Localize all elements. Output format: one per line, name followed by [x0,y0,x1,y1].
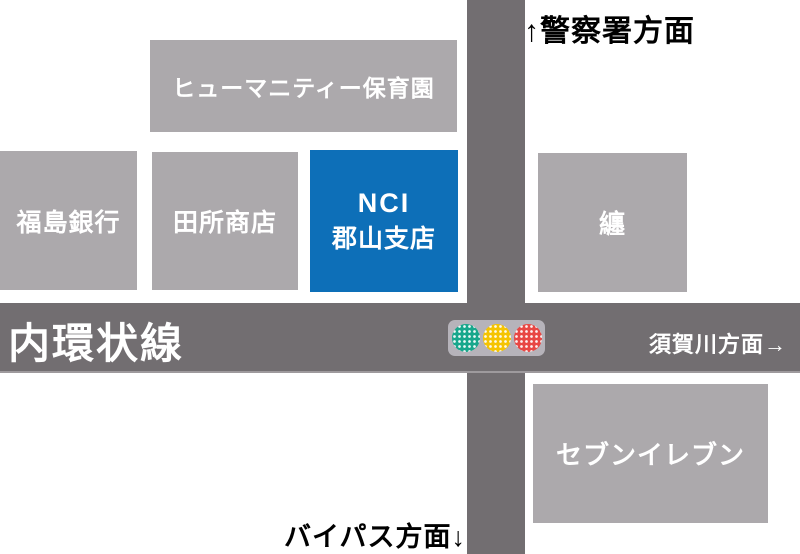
traffic-light-yellow-lamp-icon [483,324,511,352]
building-label: ヒューマニティー保育園 [172,69,435,103]
building-humanity-nursery: ヒューマニティー保育園 [150,40,457,132]
road-name-naikanjosen: 内環状線 [8,310,184,371]
traffic-light [448,320,545,356]
building-tadokoro-shoten: 田所商店 [152,152,298,290]
building-label: 福島銀行 [16,203,120,239]
direction-south-bypass: バイパス方面↓ [284,515,466,554]
building-label: セブンイレブン [556,435,745,472]
building-label: 田所商店 [173,203,277,239]
building-label-line2: 郡山支店 [332,221,436,257]
traffic-light-red-lamp-icon [514,324,542,352]
building-label-line1: NCI [358,185,411,221]
building-label: 纏 [599,204,626,241]
building-fukushima-bank: 福島銀行 [0,151,137,290]
building-seven-eleven: セブンイレブン [533,384,768,523]
road-vertical [467,0,525,554]
direction-north-police-station: ↑警察署方面 [524,6,695,50]
access-map: ヒューマニティー保育園 福島銀行 田所商店 NCI 郡山支店 纏 セブンイレブン… [0,0,800,554]
building-matoi: 纏 [538,153,687,292]
traffic-light-green-lamp-icon [452,324,480,352]
building-nci-koriyama-branch-highlight: NCI 郡山支店 [310,150,458,292]
direction-east-sukagawa: 須賀川方面→ [649,327,787,359]
